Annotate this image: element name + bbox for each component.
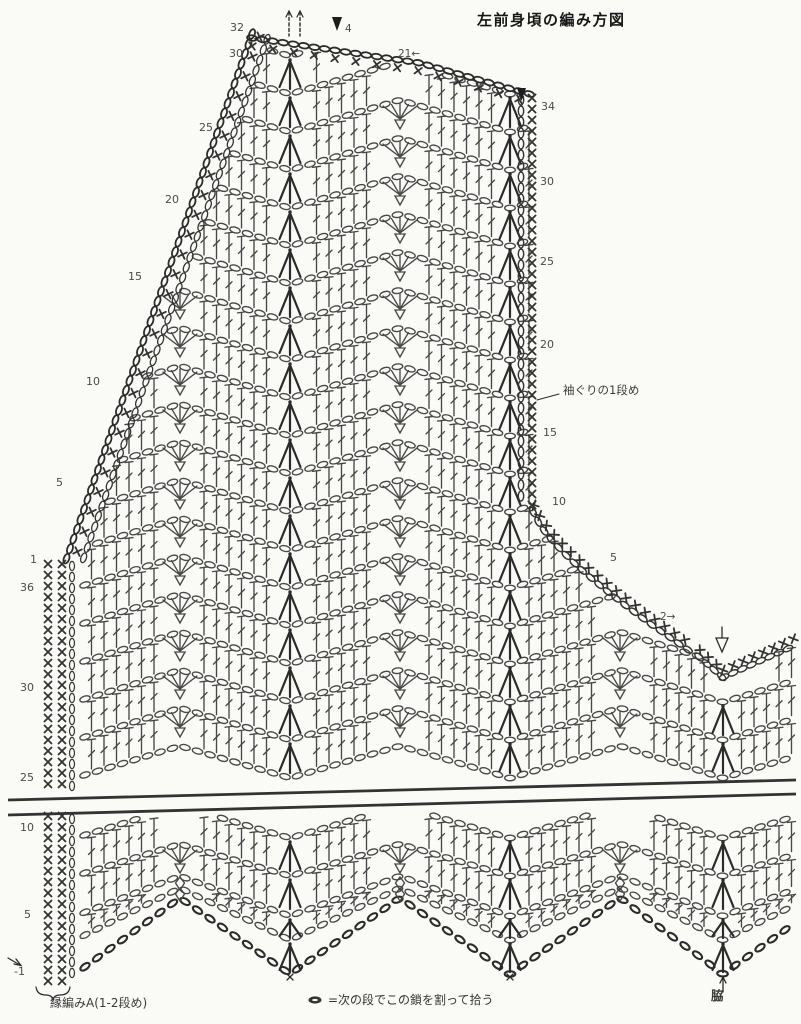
pattern-fill <box>79 47 795 977</box>
armhole-row1-annotation: 袖ぐりの1段め <box>563 385 639 397</box>
row-number: 15 <box>128 271 142 282</box>
crochet-pattern-page: 左前身頃の編み方図 4 21← 2→ 袖ぐりの1段め 縁編みA(1-2段め) 脇… <box>0 0 801 1024</box>
crochet-chart-canvas <box>0 0 801 1024</box>
row-number: 5 <box>56 477 63 488</box>
row-number: 36 <box>20 582 34 593</box>
cluster-stitches <box>280 58 734 972</box>
side-seam-label: 脇 <box>711 990 724 1003</box>
row-number: 25 <box>20 772 34 783</box>
row-number: 25 <box>540 256 554 267</box>
legend-text: =次の段でこの鎖を割って拾う <box>328 991 493 1008</box>
row-number: 5 <box>24 909 31 920</box>
row-marker-2: 2→ <box>660 612 675 623</box>
row-number: 25 <box>199 122 213 133</box>
row-number: 5 <box>610 552 617 563</box>
legend: =次の段でこの鎖を割って拾う <box>307 991 493 1008</box>
row-number: -1 <box>14 966 25 977</box>
row-number: 10 <box>552 496 566 507</box>
edging-a-label: 縁編みA(1-2段め) <box>50 997 147 1009</box>
row-number: 30 <box>540 176 554 187</box>
row-number: 15 <box>543 427 557 438</box>
row-number: 32 <box>230 22 244 33</box>
page-title: 左前身頃の編み方図 <box>477 9 626 30</box>
row-number: 30 <box>20 682 34 693</box>
edge-stitches <box>45 28 798 984</box>
row-number: 1 <box>30 554 37 565</box>
row-number: 34 <box>541 101 555 112</box>
row-number: 30 <box>229 48 243 59</box>
row-number: 10 <box>20 822 34 833</box>
row-number: 20 <box>540 339 554 350</box>
break-lines <box>8 780 796 815</box>
row-marker-21: 21← <box>398 49 420 60</box>
row-start-marker-4: 4 <box>345 24 352 35</box>
chain-symbol-icon <box>307 995 323 1005</box>
row-number: 10 <box>86 376 100 387</box>
row-number: 20 <box>165 194 179 205</box>
